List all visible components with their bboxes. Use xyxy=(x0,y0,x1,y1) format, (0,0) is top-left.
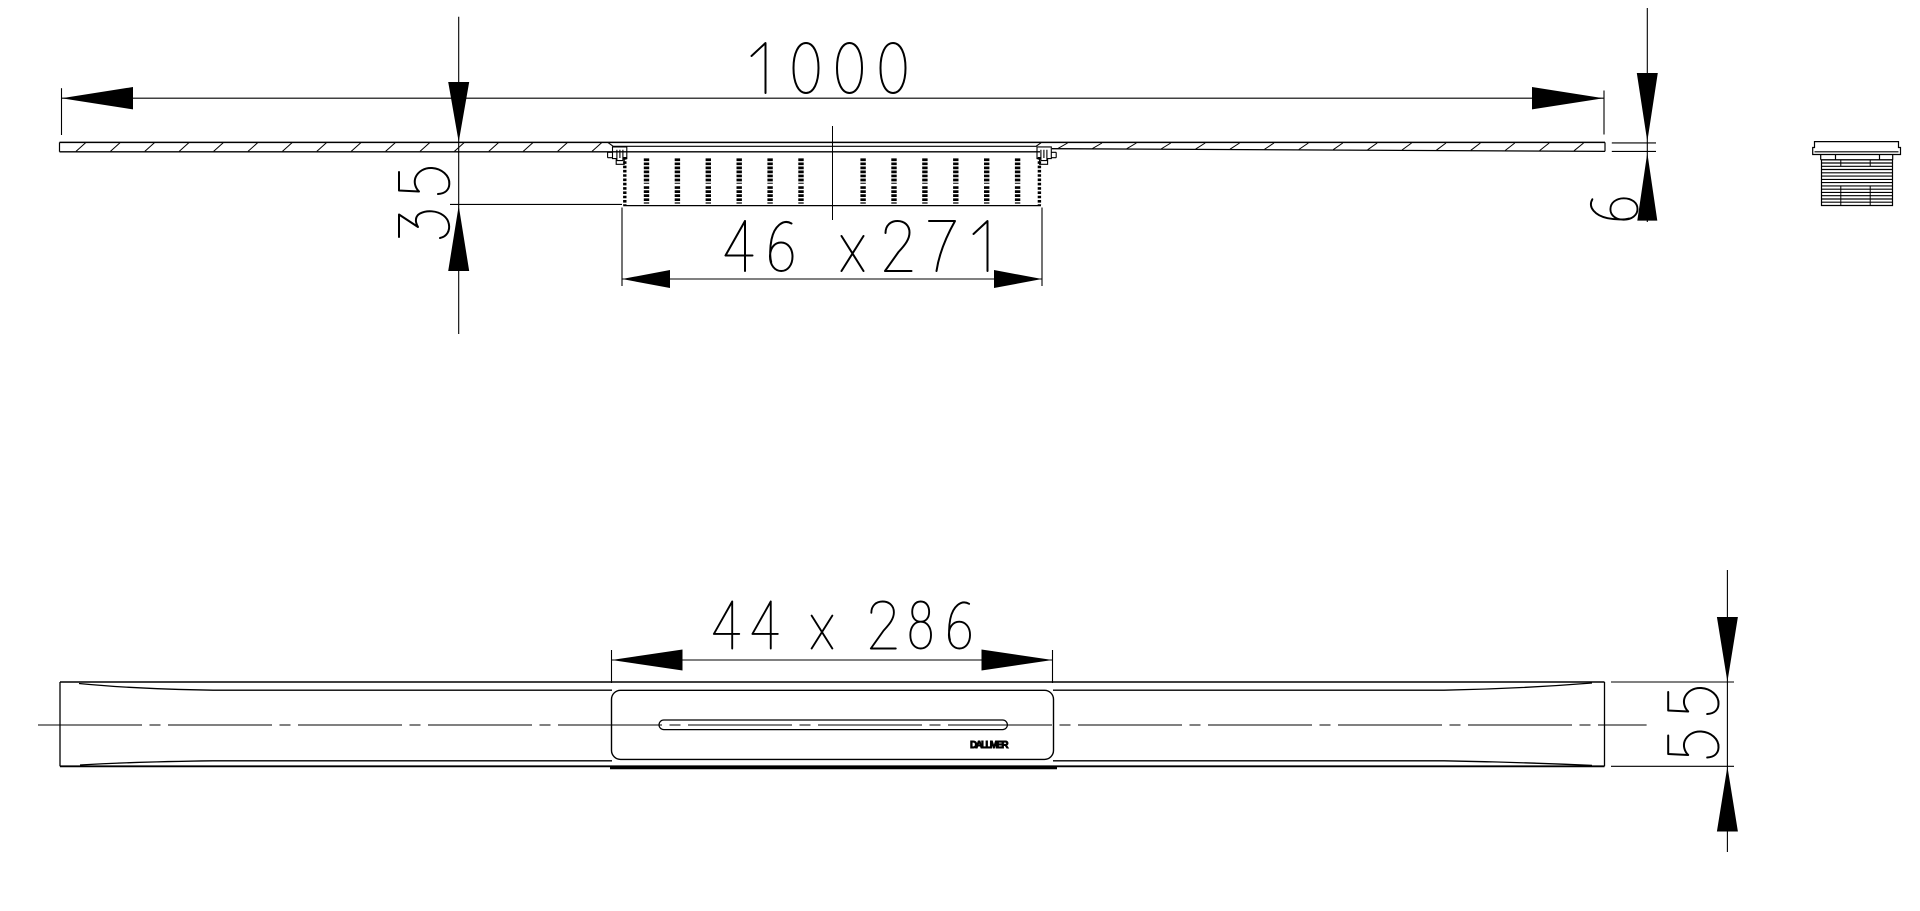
svg-text:DALLMER: DALLMER xyxy=(970,740,1009,751)
